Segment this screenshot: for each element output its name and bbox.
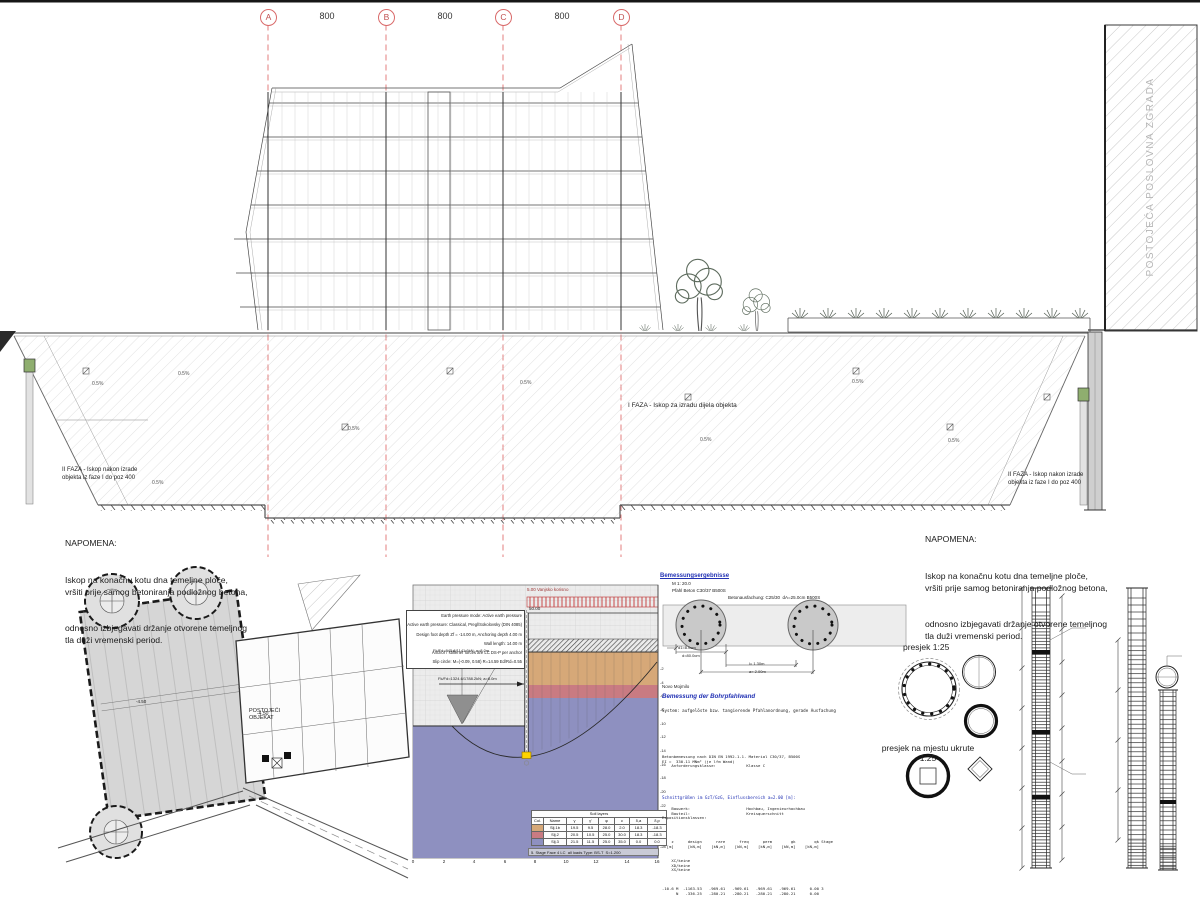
geo-axis-tick: 4 xyxy=(469,859,479,865)
level-label: 50.00 xyxy=(529,606,540,612)
geo-status-line: 5. Stage Face 4 LC all loads Type: BS-T … xyxy=(528,848,659,856)
geo-axis-tick: 14 xyxy=(622,859,632,865)
tree-icon xyxy=(742,289,770,331)
soil-table-title: Soil layers xyxy=(532,811,667,818)
bem-system-line: System: aufgelöste bzw. tangierende Pfah… xyxy=(662,708,836,713)
soil-swatch xyxy=(532,832,544,839)
soil-layers-table: Soil layers Col. Name γ γ' φ c δ,a δ,p S… xyxy=(531,810,667,846)
geo-axis-tick: 12 xyxy=(591,859,601,865)
bem-results-table: z design rare freq perm gk qk Stage [m] … xyxy=(662,802,833,900)
faza1-note: I FAZA - Iskop za izradu dijela objekta xyxy=(628,402,737,410)
slope-label: 0.5% xyxy=(152,480,163,486)
slope-label: 0.5% xyxy=(852,379,863,385)
anchor-force-label: Fk/Fd=1324.6/1788.2kN; a=8.0m xyxy=(438,676,497,681)
dim-l: l= 1.30m xyxy=(749,661,764,666)
grid-bubble-b: B xyxy=(378,9,395,26)
geo-axis-tick: 8 xyxy=(530,859,540,865)
drawing-sheet: A B C D 800 800 800 POSTOJEĆA POSLOVNA Z… xyxy=(0,0,1200,900)
existing-building-label: POSTOJEĆA POSLOVNA ZGRADA xyxy=(1145,27,1159,327)
geo-axis-tick: 0 xyxy=(408,859,418,865)
geo-axis-tick: 2 xyxy=(439,859,449,865)
dim-d1: d1=8.0cm xyxy=(678,645,696,650)
plan-elevation-label: -4.50 xyxy=(136,699,146,705)
table-row: Slj.1b19.5 9.528.0 2.018.3 -18.3 xyxy=(532,825,667,832)
bem-title: Bemessungsergebnisse xyxy=(660,572,729,580)
slope-label: 0.5% xyxy=(700,437,711,443)
bem-material: Pfahl Beton C30/37 B500S xyxy=(672,588,726,594)
grid-bubble-a: A xyxy=(260,9,277,26)
bem-subtitle: Bemessung der Bohrpfahlwand xyxy=(662,693,755,700)
grid-dim-label: 800 xyxy=(307,11,347,21)
pile-band-diagram xyxy=(663,600,906,674)
building-section xyxy=(234,44,663,330)
slope-label: 0.5% xyxy=(348,426,359,432)
faza2-note-right: II FAZA - Iskop nakon izradeobjekta iz f… xyxy=(1008,454,1083,496)
soil-swatch xyxy=(532,839,544,846)
rebar-cage-c xyxy=(1158,690,1178,870)
grid-bubble-d: D xyxy=(613,9,630,26)
grid-dim-label: 800 xyxy=(425,11,465,21)
drawing-canvas xyxy=(0,0,1200,900)
presjek-ukrute-label: presjek na mjestu ukrute1:25 xyxy=(860,723,996,773)
surcharge-load-band xyxy=(527,597,658,607)
tree-icon xyxy=(675,259,722,331)
anchor-force-label: Fk/Fd=845.6/1141.6kN; a=8.0m xyxy=(433,648,489,653)
napomena-left: NAPOMENA: Iskop na konačnu kotu dna teme… xyxy=(65,513,248,658)
excavation-section xyxy=(14,336,1089,524)
rebar-cage-b xyxy=(1116,588,1149,868)
bem-table-title: Schnittgrößen im GzT/GzG, Einflussbereic… xyxy=(662,795,796,800)
faza2-note-left: II FAZA - Iskop nakon izradeobjekta iz f… xyxy=(62,449,137,491)
napomena-right: NAPOMENA: Iskop na konačnu kotu dna teme… xyxy=(925,509,1108,654)
grid-bubble-c: C xyxy=(495,9,512,26)
geo-axis-tick: 16 xyxy=(652,859,662,865)
dim-d: d=80.0cm xyxy=(682,653,700,658)
geo-info-box: Earth pressure mode: Active earth pressu… xyxy=(406,610,525,669)
project-name: Novo Mojmilo xyxy=(662,684,689,690)
dim-a: a= 2.00m xyxy=(749,669,766,674)
plan-elevation-label: -4.50 xyxy=(257,711,268,717)
existing-building-band xyxy=(1084,25,1197,510)
bem-scale: M 1: 20.0 xyxy=(672,581,691,587)
left-pile-cap xyxy=(24,359,35,372)
bem-infill: Betonausfachung: C25/30 dA=25.0cm B500S xyxy=(728,595,820,601)
slope-label: 0.5% xyxy=(178,371,189,377)
presjek-label: presjek 1:25 xyxy=(903,642,949,652)
grid-dim-label: 800 xyxy=(542,11,582,21)
surcharge-label: 5.00 Vanjsko korisno xyxy=(527,587,568,593)
soil-swatch xyxy=(532,825,544,832)
geo-axis-tick: 6 xyxy=(500,859,510,865)
slope-label: 0.5% xyxy=(520,380,531,386)
slope-label: 0.5% xyxy=(948,438,959,444)
slope-label: 0.5% xyxy=(92,381,103,387)
right-pile-cap xyxy=(1078,388,1089,401)
wall-toe-marker xyxy=(522,752,531,759)
sheet-top-border xyxy=(0,0,1200,3)
pile-detail-small xyxy=(1156,656,1182,688)
geo-axis-tick: -2 xyxy=(660,666,664,671)
geo-axis-tick: 10 xyxy=(561,859,571,865)
table-row: Slj.220.5 10.525.0 30.018.3 -18.3 xyxy=(532,832,667,839)
table-row: Slj.321.5 11.525.0 35.00.0 0.0 xyxy=(532,839,667,846)
